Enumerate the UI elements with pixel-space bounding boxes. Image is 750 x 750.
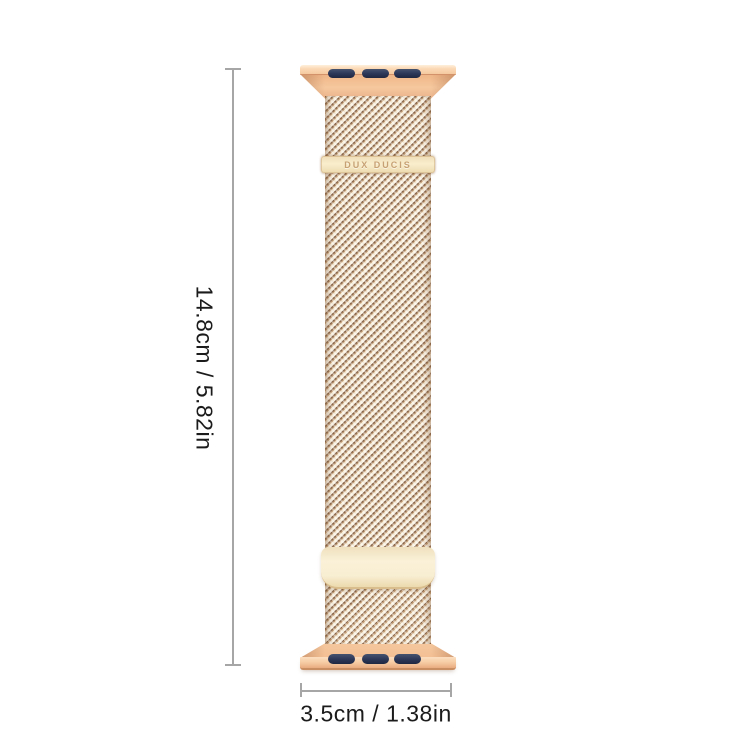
magnetic-clasp-plate [321, 547, 435, 589]
height-dimension-label: 14.8cm / 5.82in [191, 286, 218, 451]
width-dimension-cap-right [450, 683, 452, 697]
brand-clasp-bar: DUX DUCIS [321, 156, 435, 173]
height-dimension-cap-bottom [225, 664, 241, 666]
spring-bar-slot-icon [394, 69, 421, 78]
spring-bar-slot-icon [328, 654, 355, 664]
width-dimension-cap-left [300, 683, 302, 697]
spring-bar-slot-icon [362, 654, 389, 664]
watch-band: DUX DUCIS [300, 65, 456, 671]
height-dimension-cap-top [225, 68, 241, 70]
spring-bar-slot-icon [394, 654, 421, 664]
width-dimension-line [301, 690, 451, 692]
spring-bar-slot-icon [362, 69, 389, 78]
brand-label: DUX DUCIS [344, 160, 412, 170]
height-dimension-line [232, 69, 234, 666]
spring-bar-slot-icon [328, 69, 355, 78]
width-dimension-label: 3.5cm / 1.38in [300, 701, 451, 728]
